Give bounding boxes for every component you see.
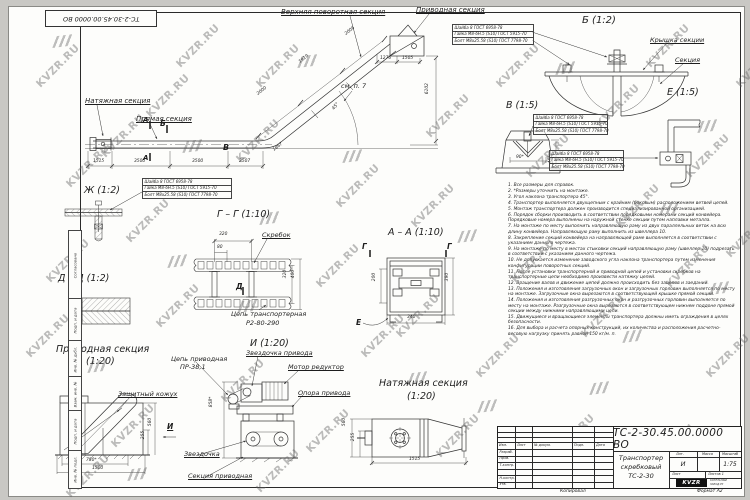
margin-cell-label: Подп. и дата [73,418,78,444]
kvzr-logo-sub-1: КОТЕЛЬНЫЙ [710,479,727,482]
zvezdochka-label: Звездочка [184,451,220,458]
e-detail-label: Е (1:5) [667,88,699,98]
title-block-title-3: ТС-2-30 [613,472,669,480]
zh-detail-label: Ж (1:2) [84,186,120,196]
tb-sign-row: Разраб. [500,451,513,454]
marker-a-bottom: А [143,155,148,162]
marker-g-right: Г [447,243,452,251]
margin-cell-label: Инв. № подл. [73,456,78,482]
margin-cell-3: Инв. № дубл. [68,340,82,378]
sm-p7-label: см. п. 7 [341,83,366,90]
i-view-label: И (1:20) [250,339,289,349]
dim-320-top: 320 [219,233,227,237]
dim-858: 858* [210,397,214,408]
dim-390: 390 [446,273,450,281]
title-block-line [697,451,698,471]
b-detail-label: Б (1:2) [582,16,616,26]
format-label: Формат А2 [697,489,723,494]
sheet-label: Лист [672,473,681,476]
title-block-doc-number: ТС-2-30.45.00.0000 ВО [613,427,741,451]
tb-sign-row: Пров. [500,457,510,460]
margin-cell-label: Согласовано [73,252,78,278]
title-block-line [515,427,516,488]
dim-255-ps: 255 [141,431,145,439]
zvezdochka-privoda-label: Звездочка привода [246,350,313,357]
kopiroval-label: Копировал [560,489,586,494]
tb-header-col: Лист [517,444,526,447]
verhnyaya-povorotnaya-label: Верхняя поворотная секция [281,9,385,16]
title-block-title-1: Транспортер [613,454,669,462]
dim-200: 200 [372,273,376,281]
lit-header: Лит. [676,453,684,456]
fastener-note-line: Болт М8х25.58 (S10) ГОСТ 7798-70 [453,38,533,44]
marker-b: Б [160,120,166,128]
fastener-note-3: Шайба 8 ГОСТ 6958-78Гайка М8-6Н.5 (S10) … [549,150,624,171]
note-item-12: 12. Вращение валов и движение цепей долж… [508,281,737,286]
margin-cell-label: Инв. № дубл. [73,346,78,372]
fastener-note-line: Болт М8х25.58 (S10) ГОСТ 7798-70 [143,192,231,198]
zashchitny-kozhuh-label: Защитный кожух [118,391,177,398]
tb-sign-row: Утв. [500,483,507,486]
title-block: Изм.Лист№ докум.Подп.ДатаРазраб.Пров.Т.к… [497,426,742,489]
sektsiya-privodnaya-label: Секция приводная [188,473,252,480]
tsep-privodnaya-label-2: ПР-38,1 [180,364,206,371]
title-block-line [572,427,573,488]
dim-1515-ns: 1515 [409,458,420,462]
tb-sign-row: Т.контр. [500,464,515,467]
dim-90: 90* [516,156,524,160]
title-block-title-2: скребковый [613,463,669,471]
scale-header: Масштаб [722,453,738,456]
tsep-transp-label-2: Р2-80-290 [246,320,279,327]
dim-400: 400 [291,270,295,278]
note-item-16: 16. Для выбора и расчета опорных констру… [508,326,737,337]
dd-detail-label: Д – Д (1:2) [58,274,109,284]
kvzr-logo: KVZR [676,479,707,487]
privodnaya-sektsiya-top-label: Приводная секция [416,7,485,14]
tb-header-col: № докум. [534,444,551,447]
opora-privoda-label: Опора привода [298,390,350,397]
title-block-line [532,427,533,488]
dim-6102: 6102 [426,83,430,94]
fastener-note-line: Болт М8х25.58 (S10) ГОСТ 7798-70 [550,164,623,170]
scale-value: 1:75 [719,457,741,471]
dim-255-ns: 255 [352,433,356,441]
note-item-2: 2. *Размеры уточнить на монтаже. [508,189,737,194]
dim-80: 80 [217,246,223,250]
dim-1276: 1276 [380,57,391,61]
natyazhnaya-label: Натяжная секция [85,98,150,105]
note-item-3: 3. Угол наклона транспортера 45°. [508,195,737,200]
title-block-line [705,471,706,478]
margin-cell-1: Согласовано [68,230,82,300]
title-block-line [594,427,595,488]
marker-i-view: И [167,423,173,431]
kvzr-logo-sub-2: ЗАВОД.РУ [710,483,723,486]
margin-cell-5: Подп. и дата [68,410,82,452]
corner-stamp: ТС-2-30.45.00.0000 ВО [45,10,157,27]
margin-cell-label: Подп. и дата [73,307,78,333]
marker-d: Д [236,283,243,291]
skrebok-label: Скребок [262,232,291,239]
natyazhnaya-view-scale: (1:20) [407,392,436,402]
tb-header-col: Изм. [499,444,507,447]
sheets-label: Листов 1 [708,473,724,476]
lit-value: И [669,457,697,471]
dim-1505: 1505 [402,57,413,61]
marker-e-aa: Е [356,319,361,327]
technical-notes: 1. Все размеры для справок.2. *Размеры у… [508,183,737,338]
marker-v: В [223,144,229,152]
fastener-note-4: Шайба 8 ГОСТ 6958-78Гайка М8-6Н.5 (S10) … [142,178,232,199]
dim-3500-b: 3500 [192,160,203,164]
margin-cell-2: Подп. и дата [68,298,82,342]
note-item-11: 11. После установки транспортерной и при… [508,270,737,281]
fastener-note-line: Болт М8х25.58 (S10) ГОСТ 7798-70 [534,128,607,134]
note-item-4: 4. Транспортер выполняется двухцепным с … [508,201,737,206]
tsep-privodnaya-label-1: Цепь приводная [171,356,227,363]
mass-header: Масса [702,453,713,456]
margin-cell-6: Инв. № подл. [68,450,82,489]
marker-g-left: Г [362,243,367,251]
corner-stamp-text: ТС-2-30.45.00.0000 ВО [63,15,140,23]
sektsiya-label: Секция [675,57,700,64]
motor-reduktor-label: Мотор редуктор [288,364,344,371]
note-item-1: 1. Все размеры для справок. [508,183,737,188]
tb-header-col: Дата [596,444,605,447]
note-item-15: 15. Движущиеся и вращающиеся элементы тр… [508,315,737,326]
tb-sign-row: Н.контр. [500,477,515,480]
tb-header-col: Подп. [574,444,584,447]
margin-cell-label: Взам. инв. № [73,381,78,407]
drawing-page: ТС-2-30.45.00.0000 ВО [0,0,750,500]
margin-cell-4: Взам. инв. № [68,376,82,412]
fastener-note-1: Шайба 8 ГОСТ 6958-78Гайка М8-6Н.5 (S10) … [452,24,534,45]
dim-320-right: 320 [283,270,287,278]
dim-560-ps: 560 [148,418,152,426]
v-detail-label: В (1:5) [506,101,538,111]
